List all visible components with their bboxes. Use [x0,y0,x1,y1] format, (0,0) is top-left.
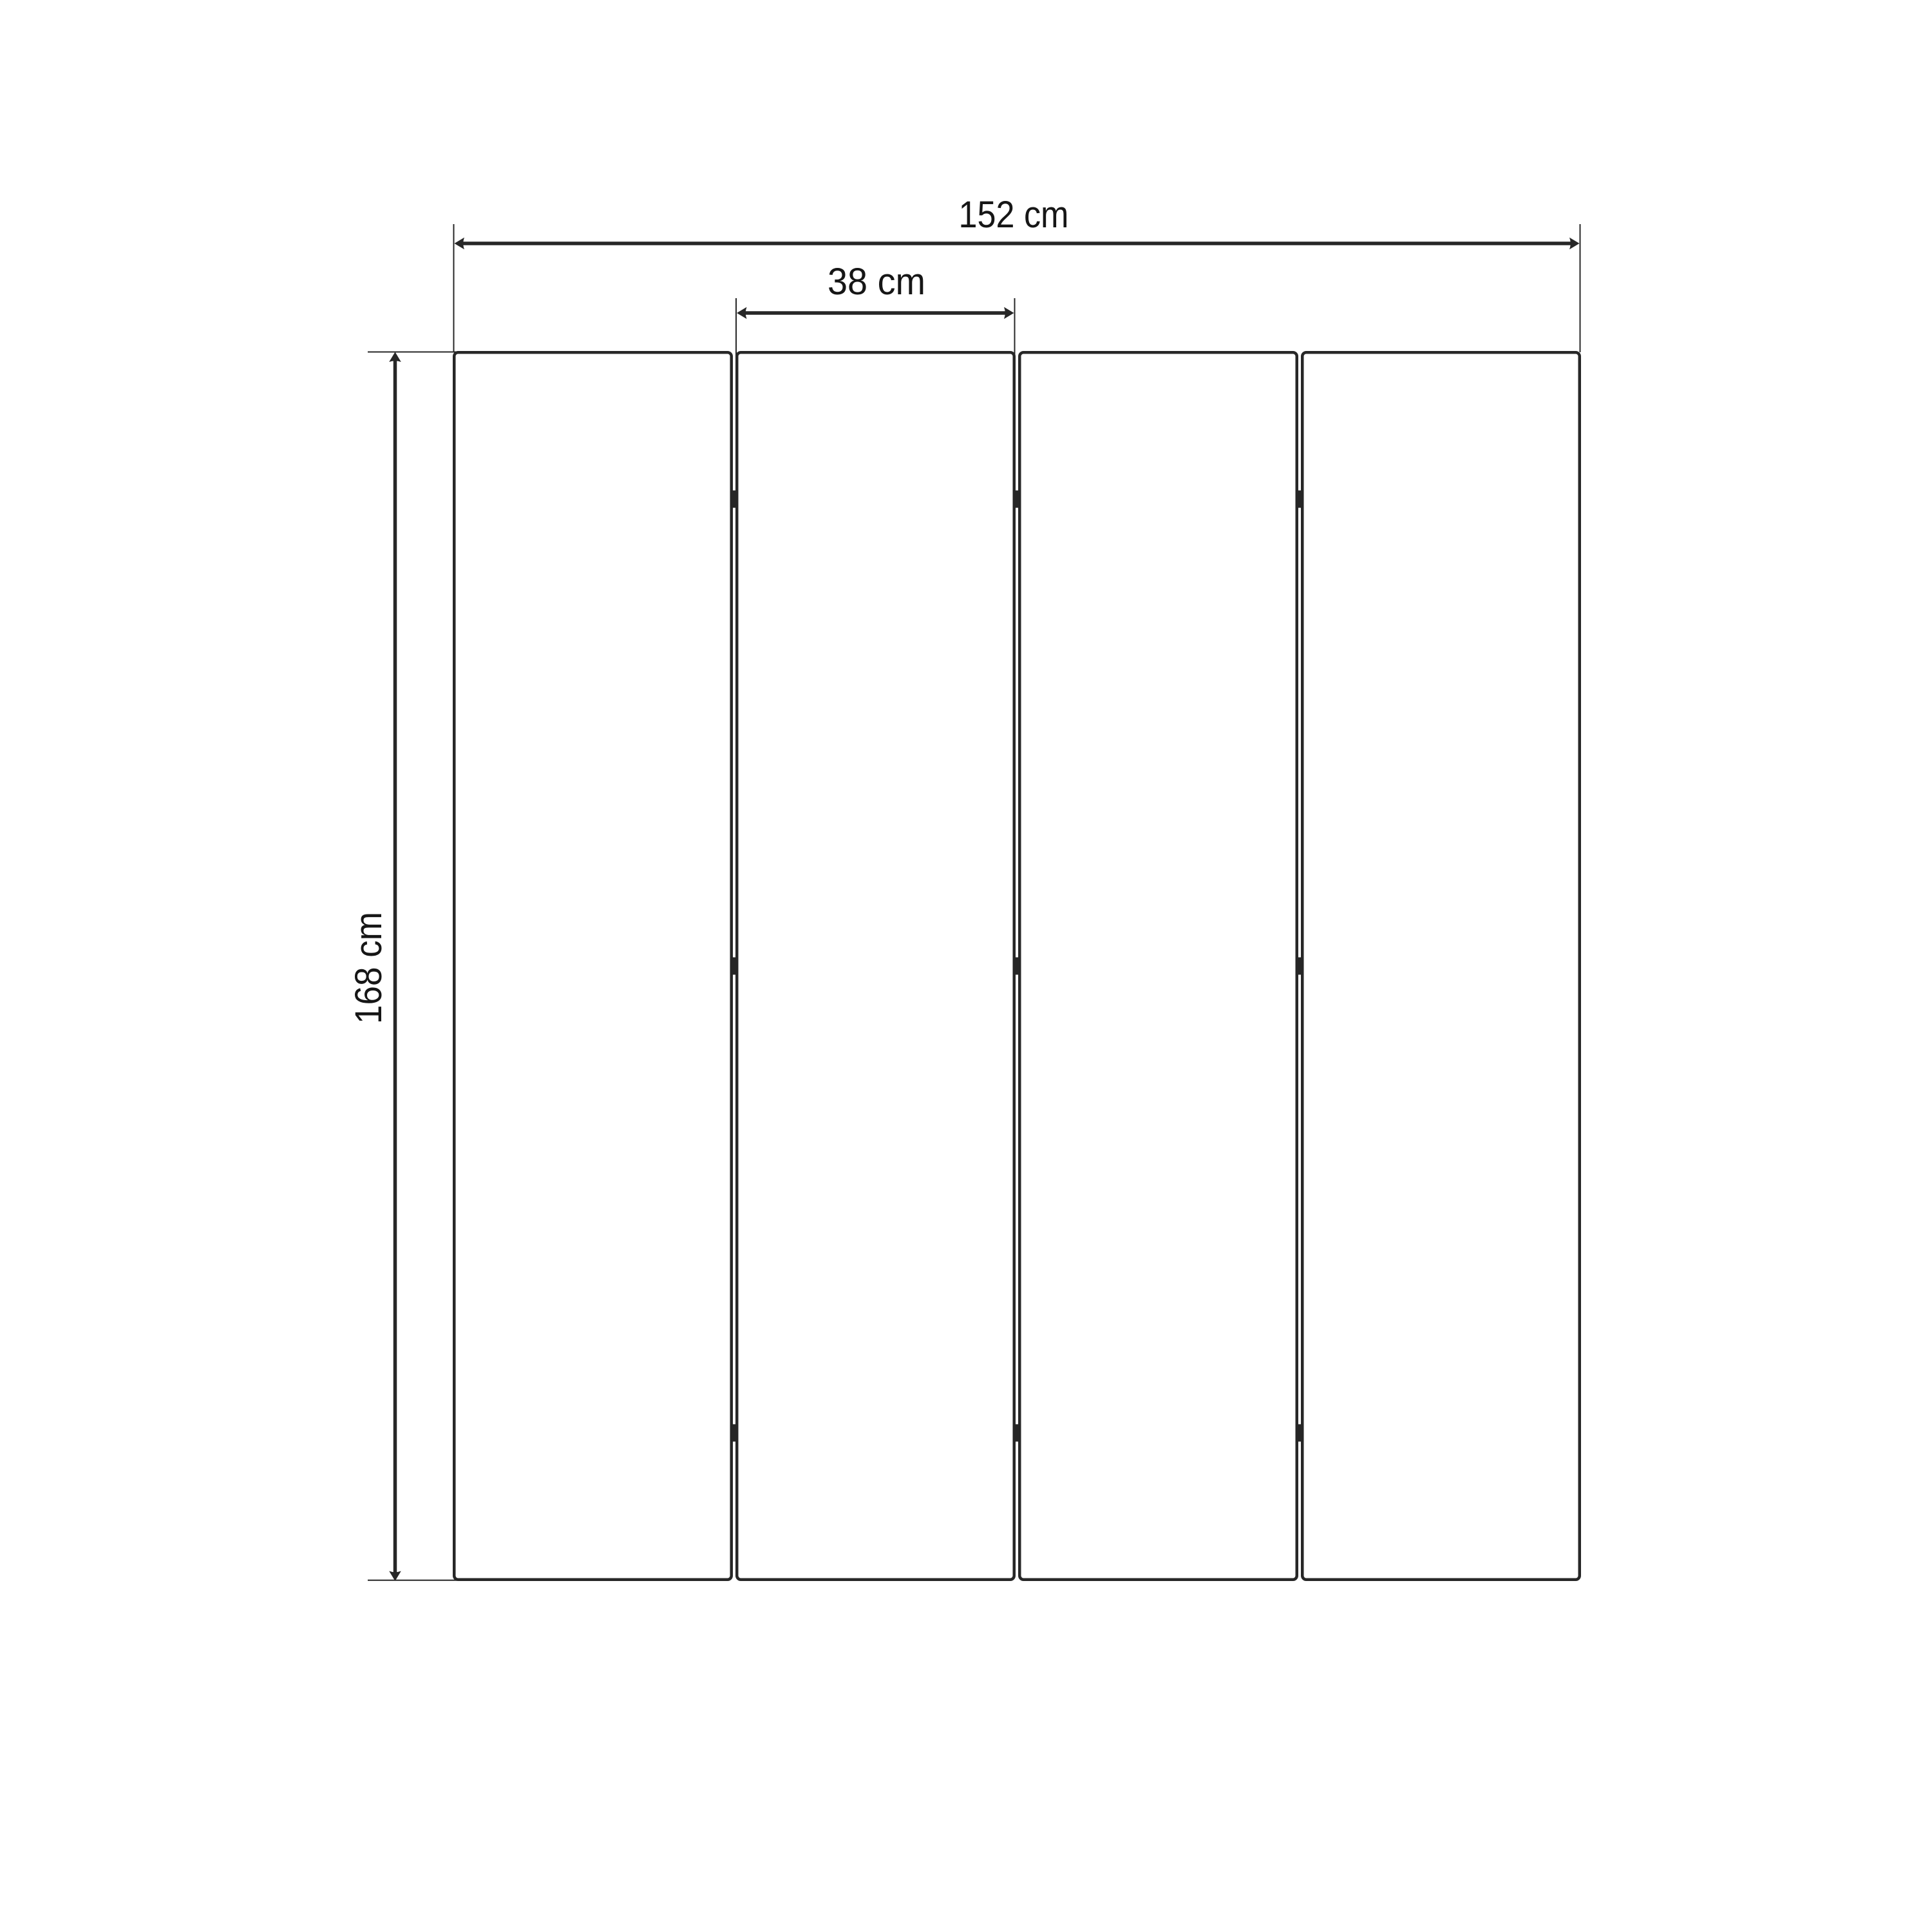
svg-text:168 cm: 168 cm [348,912,390,1024]
svg-text:38 cm: 38 cm [828,261,925,303]
svg-text:152 cm: 152 cm [959,194,1069,236]
